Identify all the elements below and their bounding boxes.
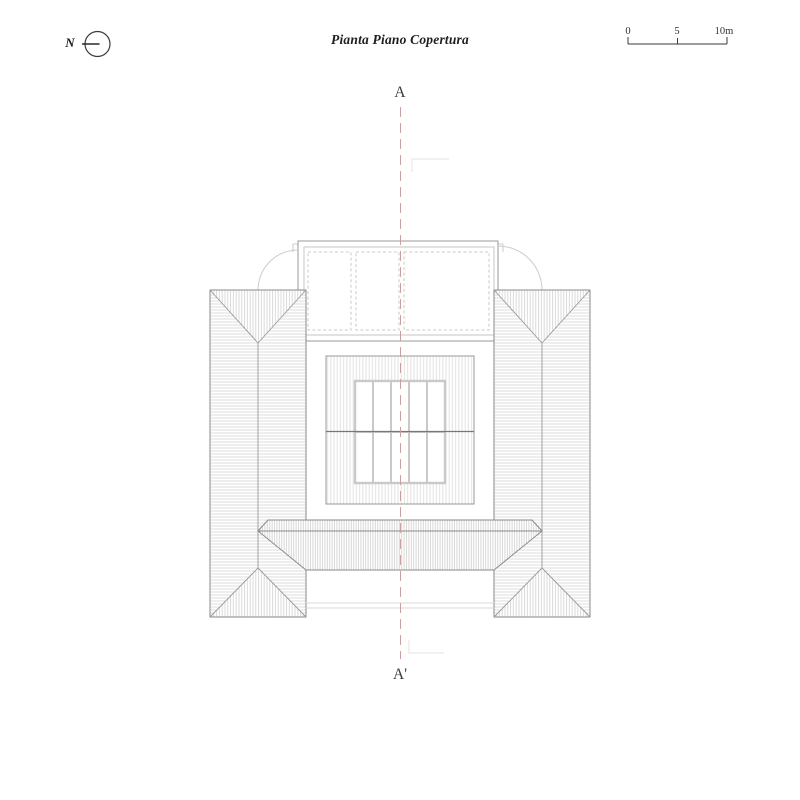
guide-mark-top xyxy=(412,159,449,172)
left-eave-arc xyxy=(258,250,298,290)
guide-mark-bottom xyxy=(409,640,444,653)
section-label-a-prime: A' xyxy=(386,666,414,684)
left-wing-roof xyxy=(210,290,306,617)
scale-label-10: 10m xyxy=(708,26,740,37)
scale-label-0: 0 xyxy=(621,26,635,37)
scale-label-5: 5 xyxy=(670,26,684,37)
right-wing-roof xyxy=(494,290,590,617)
right-eave-arc xyxy=(498,246,542,290)
roof-plan-sheet: N Pianta Piano Copertura 0 5 10m A A' xyxy=(0,0,800,800)
top-glass-block xyxy=(293,241,503,341)
section-label-a: A xyxy=(386,84,414,102)
